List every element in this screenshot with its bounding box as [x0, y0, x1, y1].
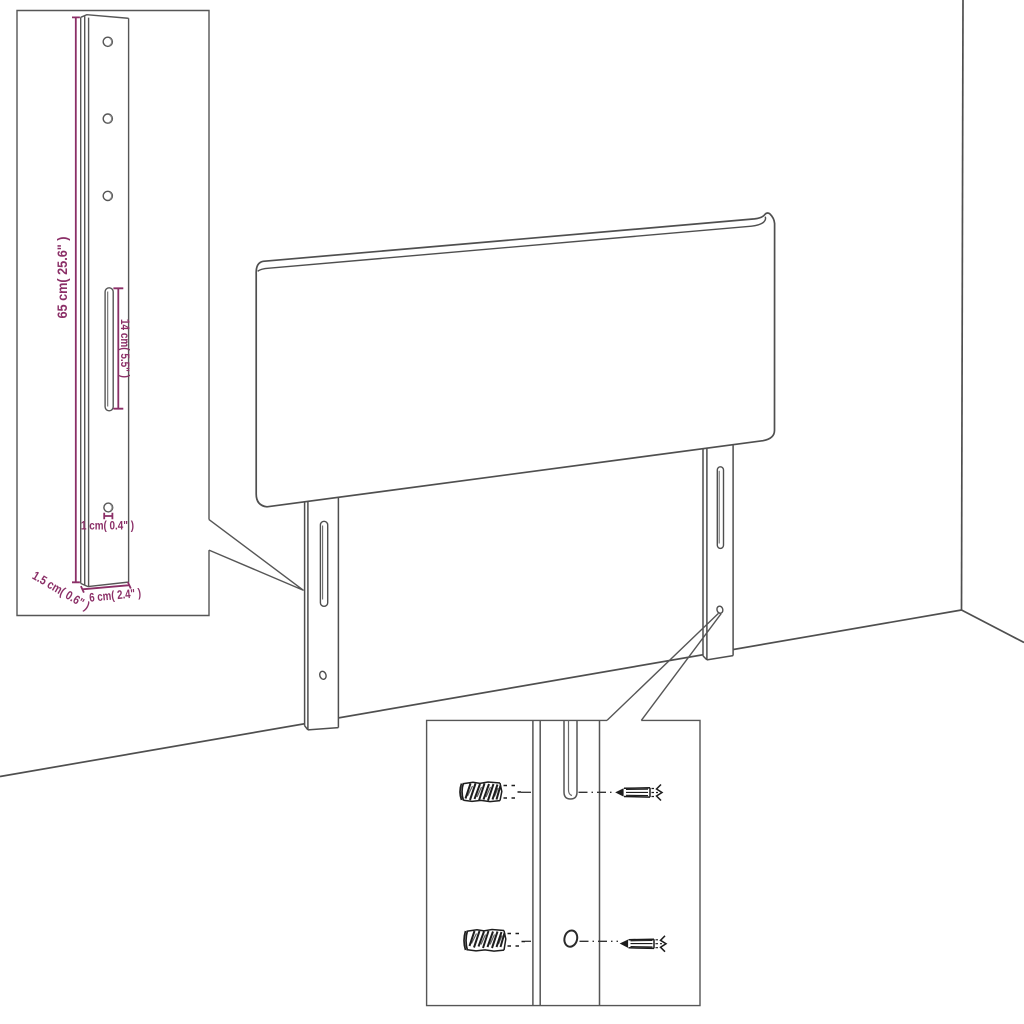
svg-text:14 cm( 5.5" ): 14 cm( 5.5" )	[118, 319, 132, 378]
svg-text:1 cm( 0.4" ): 1 cm( 0.4" )	[81, 518, 134, 532]
svg-text:65 cm( 25.6" ): 65 cm( 25.6" )	[54, 237, 70, 319]
